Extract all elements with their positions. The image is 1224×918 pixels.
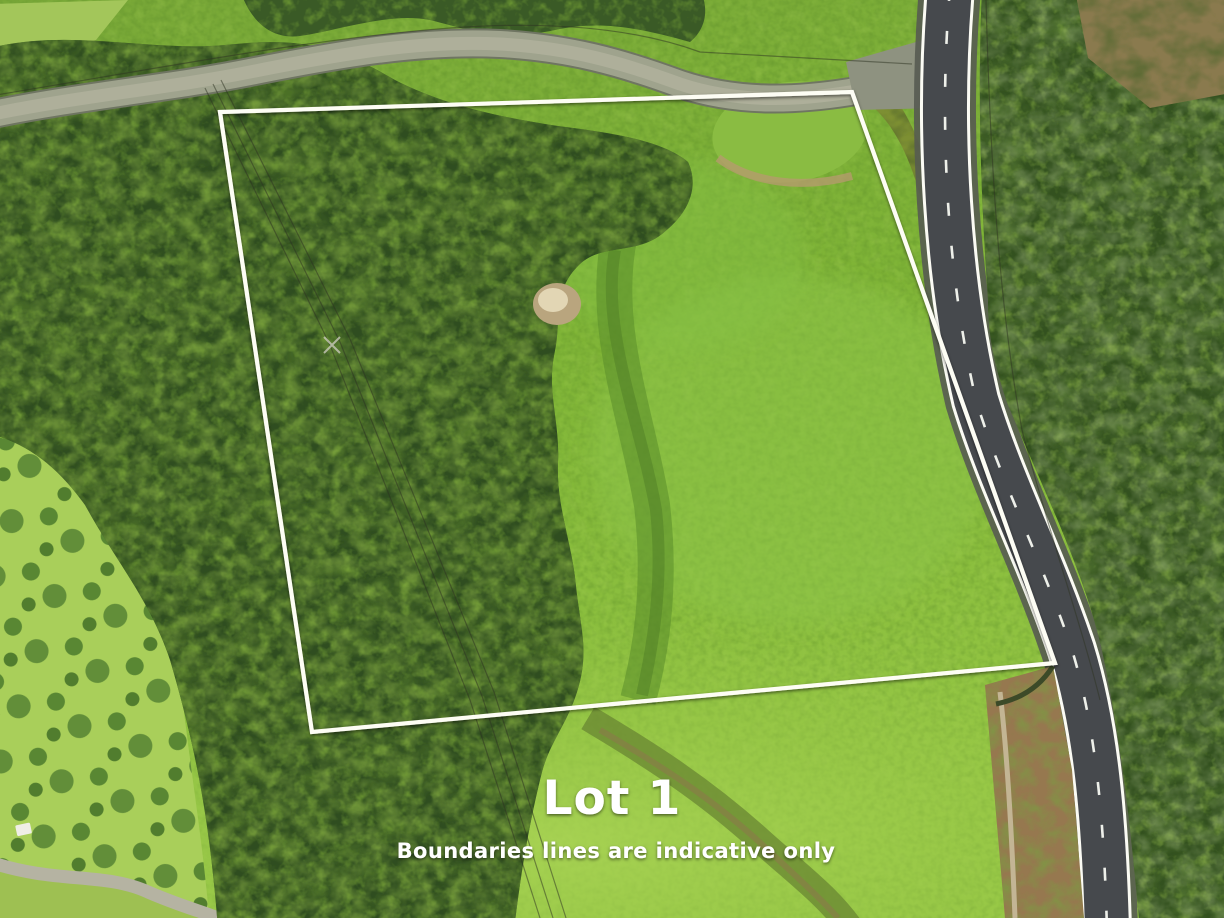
aerial-photo: Lot 1 Boundaries lines are indicative on… (0, 0, 1224, 918)
lot-label: Lot 1 (543, 771, 682, 826)
boundary-disclaimer: Boundaries lines are indicative only (397, 839, 836, 863)
bare-dirt-patch (533, 283, 581, 325)
aerial-photo-canvas: Lot 1 Boundaries lines are indicative on… (0, 0, 1224, 918)
